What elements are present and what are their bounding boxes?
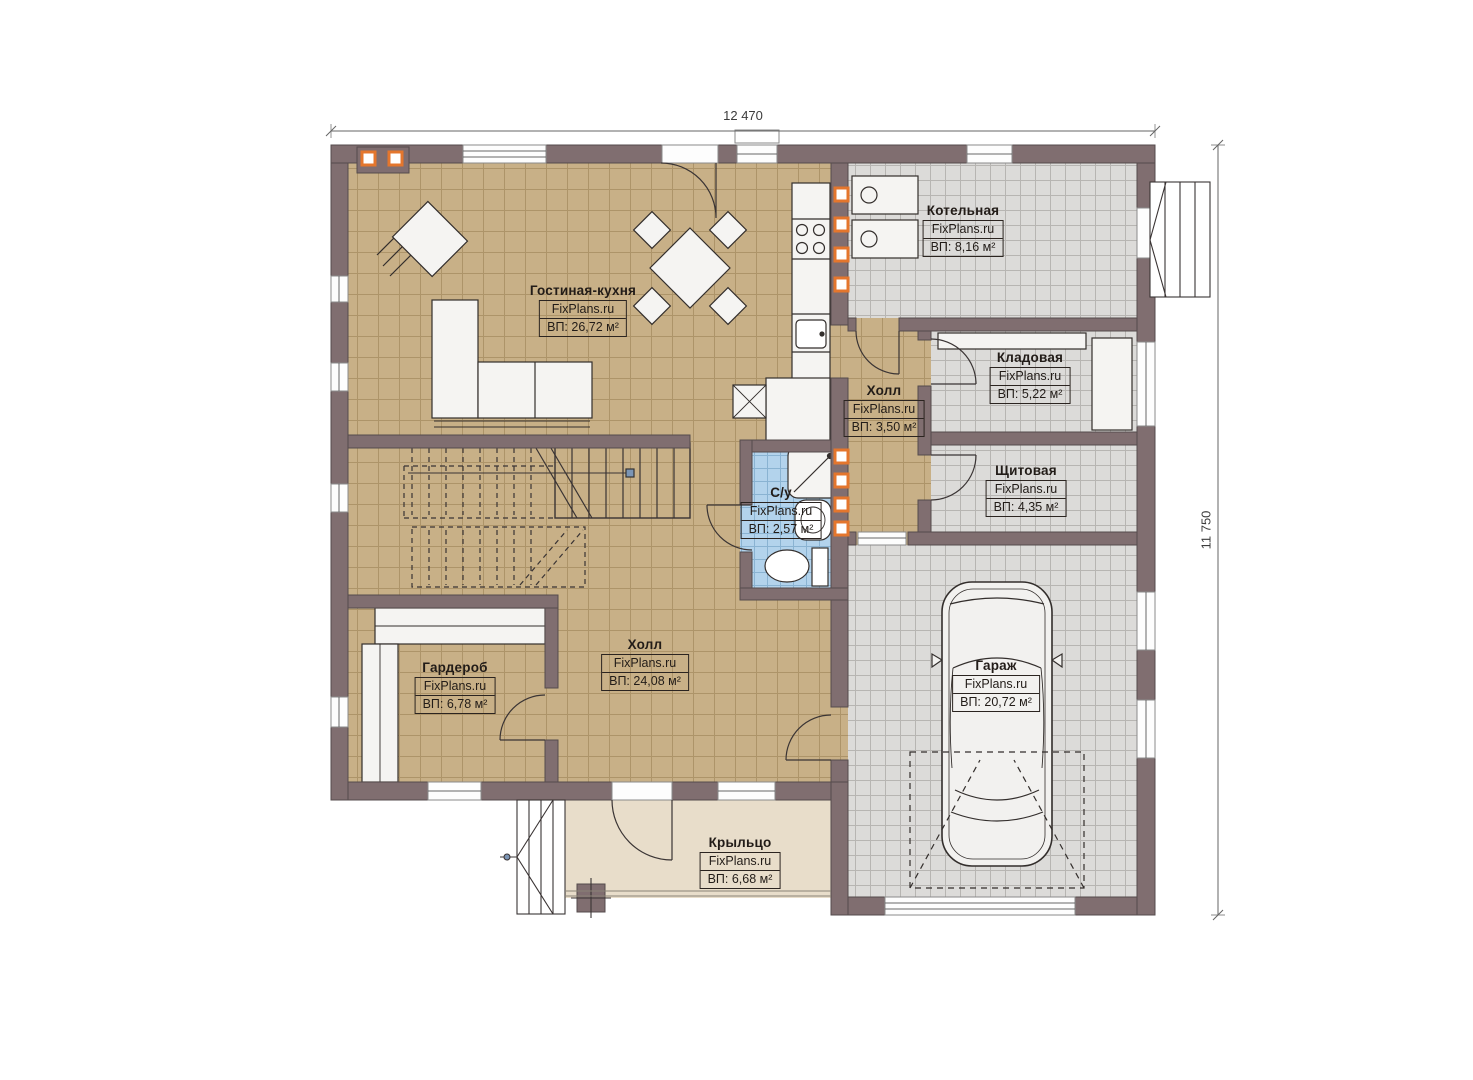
room-name: Холл: [844, 383, 925, 398]
room-label-living-kitchen: Гостиная-кухня FixPlans.ru ВП: 26,72 м²: [530, 283, 636, 337]
room-area: ВП: 6,78 м²: [416, 696, 495, 713]
room-info-box: FixPlans.ru ВП: 24,08 м²: [601, 654, 689, 691]
window-living-top: [463, 145, 546, 163]
room-info-box: FixPlans.ru ВП: 26,72 м²: [539, 300, 627, 337]
room-area: ВП: 6,68 м²: [701, 871, 780, 888]
room-label-garage: Гараж FixPlans.ru ВП: 20,72 м²: [952, 658, 1040, 712]
entrance-door-opening: [612, 782, 672, 800]
room-area: ВП: 24,08 м²: [602, 673, 688, 690]
room-name: Холл: [601, 637, 689, 652]
room-name: Крыльцо: [700, 835, 781, 850]
room-area: ВП: 3,50 м²: [845, 419, 924, 436]
wall-stairs-wardrobe: [348, 595, 558, 608]
dining-table-set: [634, 212, 747, 325]
wall-living-bottom: [348, 435, 690, 448]
room-label-hall-big: Холл FixPlans.ru ВП: 24,08 м²: [601, 637, 689, 691]
room-area: ВП: 20,72 м²: [953, 694, 1039, 711]
room-brand: FixPlans.ru: [953, 676, 1039, 694]
room-area: ВП: 8,16 м²: [924, 239, 1003, 256]
wall-porch-garage: [831, 782, 848, 915]
wall-garage-top: [908, 532, 1137, 545]
dimension-width: 12 470: [723, 108, 763, 123]
room-name: Кладовая: [990, 350, 1071, 365]
room-label-bathroom: С/у FixPlans.ru ВП: 2,57 м²: [741, 485, 822, 539]
room-area: ВП: 4,35 м²: [987, 499, 1066, 516]
room-info-box: FixPlans.ru ВП: 6,78 м²: [415, 677, 496, 714]
floor-plan-drawing: [0, 0, 1473, 1080]
room-label-porch: Крыльцо FixPlans.ru ВП: 6,68 м²: [700, 835, 781, 889]
garage-gate-opening: [885, 897, 1075, 915]
room-area: ВП: 2,57 м²: [742, 521, 821, 538]
room-brand: FixPlans.ru: [991, 368, 1070, 386]
room-brand: FixPlans.ru: [987, 481, 1066, 499]
room-info-box: FixPlans.ru ВП: 8,16 м²: [923, 220, 1004, 257]
room-name: Гостиная-кухня: [530, 283, 636, 298]
room-info-box: FixPlans.ru ВП: 4,35 м²: [986, 480, 1067, 517]
wall-boiler-bottom: [899, 318, 1137, 331]
room-name: С/у: [741, 485, 822, 500]
room-name: Гардероб: [415, 660, 496, 675]
side-steps: [1150, 182, 1210, 297]
wall-bathroom-bottom: [740, 588, 848, 600]
floor-plan-page: 12 470 11 750 Гостиная-кухня FixPlans.ru…: [0, 0, 1473, 1080]
room-brand: FixPlans.ru: [742, 503, 821, 521]
room-info-box: FixPlans.ru ВП: 20,72 м²: [952, 675, 1040, 712]
stair-direction-node: [626, 469, 634, 477]
room-brand: FixPlans.ru: [416, 678, 495, 696]
dimension-height: 11 750: [1199, 511, 1214, 550]
room-label-hall-small: Холл FixPlans.ru ВП: 3,50 м²: [844, 383, 925, 437]
room-brand: FixPlans.ru: [924, 221, 1003, 239]
room-info-box: FixPlans.ru ВП: 6,68 м²: [700, 852, 781, 889]
room-brand: FixPlans.ru: [845, 401, 924, 419]
room-name: Щитовая: [986, 463, 1067, 478]
room-label-wardrobe: Гардероб FixPlans.ru ВП: 6,78 м²: [415, 660, 496, 714]
canopy: [735, 130, 779, 143]
room-label-switchboard: Щитовая FixPlans.ru ВП: 4,35 м²: [986, 463, 1067, 517]
room-area: ВП: 5,22 м²: [991, 386, 1070, 403]
room-info-box: FixPlans.ru ВП: 3,50 м²: [844, 400, 925, 437]
room-label-storage: Кладовая FixPlans.ru ВП: 5,22 м²: [990, 350, 1071, 404]
room-brand: FixPlans.ru: [602, 655, 688, 673]
room-name: Котельная: [923, 203, 1004, 218]
terrace-door-opening: [662, 145, 718, 163]
room-brand: FixPlans.ru: [701, 853, 780, 871]
room-name: Гараж: [952, 658, 1040, 673]
room-area: ВП: 26,72 м²: [540, 319, 626, 336]
room-info-box: FixPlans.ru ВП: 5,22 м²: [990, 367, 1071, 404]
room-label-boiler: Котельная FixPlans.ru ВП: 8,16 м²: [923, 203, 1004, 257]
car: [932, 582, 1062, 866]
wall-storage-switchboard: [931, 432, 1137, 445]
room-brand: FixPlans.ru: [540, 301, 626, 319]
room-info-box: FixPlans.ru ВП: 2,57 м²: [741, 502, 822, 539]
